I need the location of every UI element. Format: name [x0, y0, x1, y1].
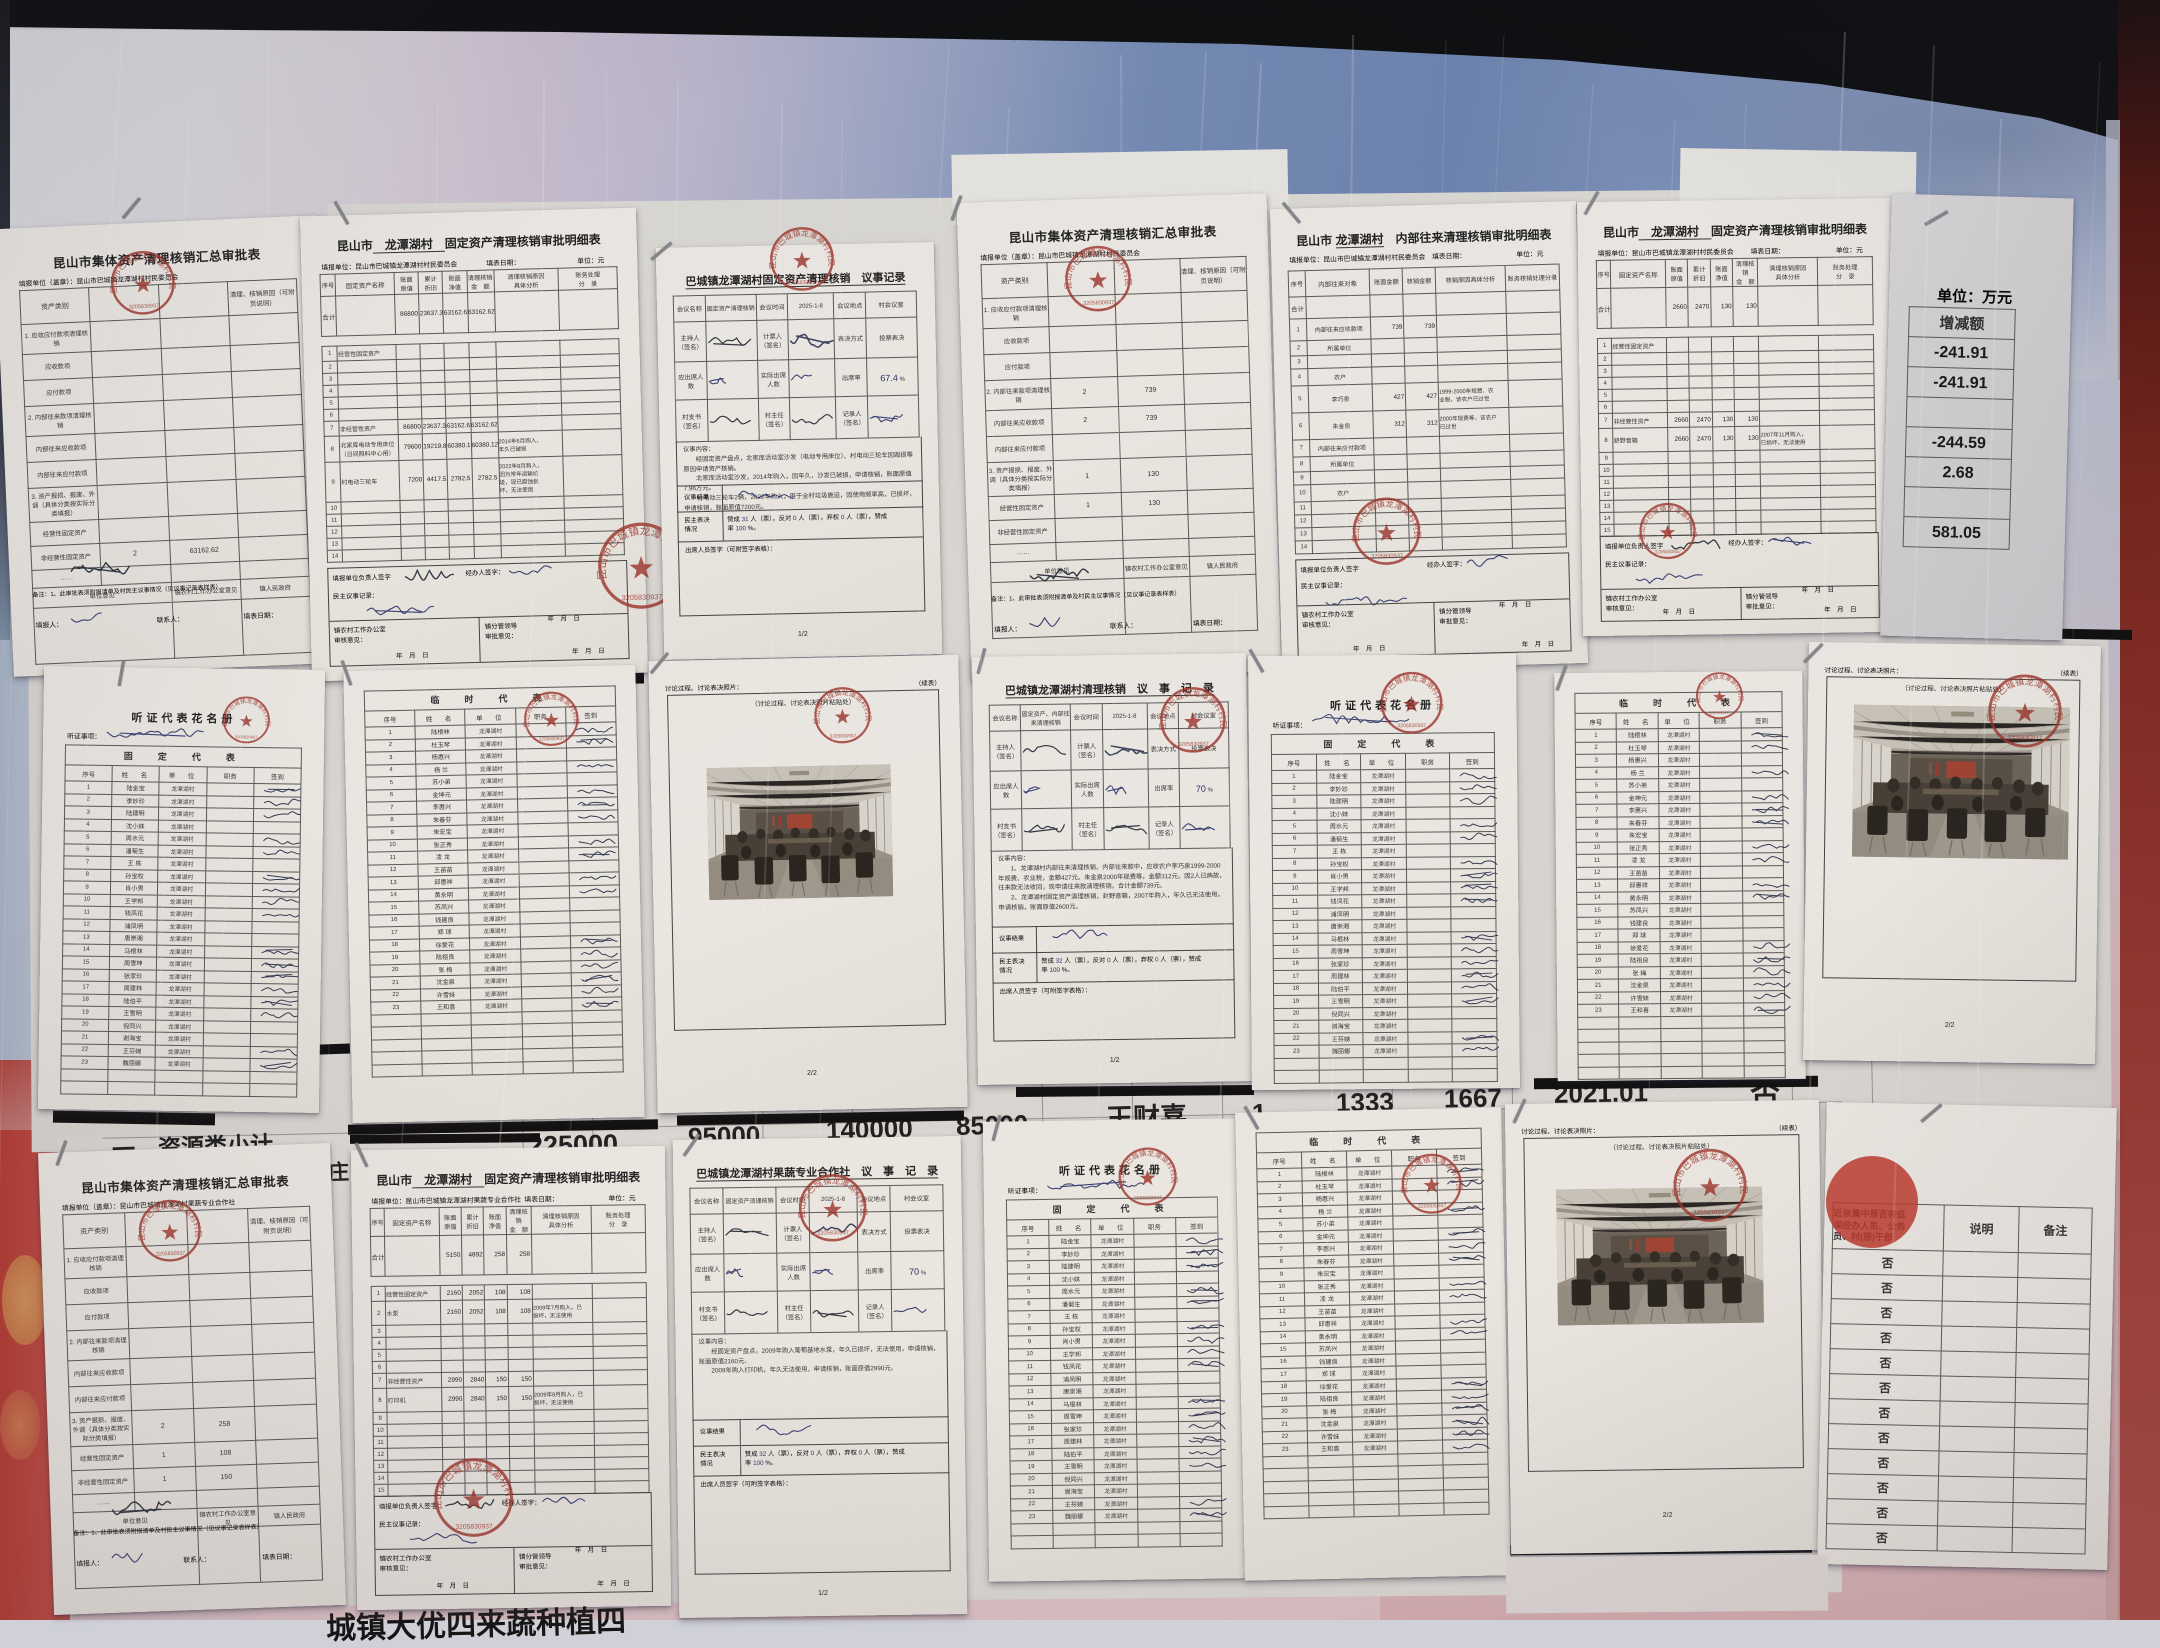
- svg-text:3205830937: 3205830937: [1693, 1209, 1728, 1216]
- svg-text:3205830937: 3205830937: [1654, 549, 1681, 555]
- svg-text:3205830937: 3205830937: [830, 733, 857, 740]
- svg-text:3205830937: 3205830937: [1083, 300, 1114, 307]
- svg-text:3205830937: 3205830937: [1178, 742, 1209, 748]
- svg-text:3205830937: 3205830937: [1708, 710, 1731, 715]
- svg-text:3205830937: 3205830937: [621, 592, 662, 602]
- svg-text:3205830937: 3205830937: [1371, 553, 1403, 560]
- svg-text:3205830937: 3205830937: [1418, 1203, 1447, 1210]
- svg-text:3205830937: 3205830937: [1134, 1195, 1162, 1201]
- svg-text:3205830937: 3205830937: [129, 303, 159, 310]
- svg-text:3205830937: 3205830937: [787, 280, 817, 287]
- svg-text:3205830937: 3205830937: [235, 734, 258, 739]
- svg-text:3205830937: 3205830937: [539, 736, 565, 742]
- svg-text:3205830937: 3205830937: [2007, 735, 2042, 742]
- svg-text:3205830937: 3205830937: [455, 1523, 493, 1531]
- svg-text:3205830937: 3205830937: [817, 1230, 849, 1236]
- svg-text:3205830937: 3205830937: [1397, 723, 1426, 729]
- svg-text:3205830937: 3205830937: [156, 1251, 186, 1258]
